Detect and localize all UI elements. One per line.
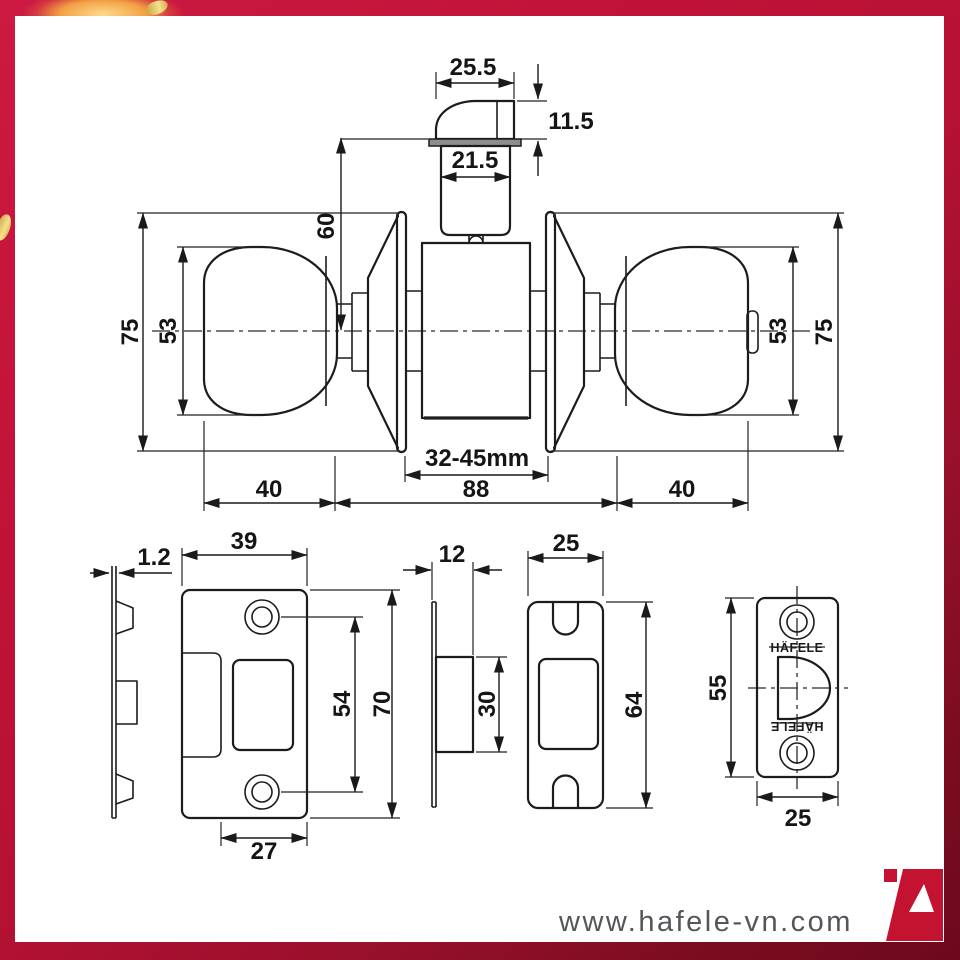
dim-text-64: 64 [621, 691, 648, 718]
strike-plate-lip [182, 653, 221, 757]
dim-text-1-2: 1.2 [137, 544, 170, 571]
dim-text-75-left: 75 [117, 319, 144, 346]
strike-side-plate [112, 566, 116, 818]
dim-text-21-5: 21.5 [452, 147, 499, 174]
latch-case-box [436, 657, 473, 752]
strike-screw-hole-top-inner [252, 607, 272, 627]
dim-text-70: 70 [369, 691, 396, 718]
dim-text-25-5: 25.5 [450, 54, 497, 81]
strike-screw-hole-top [245, 600, 279, 634]
dim-text-40-left: 40 [256, 476, 283, 503]
dim-text-11-5: 11.5 [548, 108, 593, 135]
strike-extension-lines [182, 548, 400, 846]
faceplate-brand-text-reversed: HÄFELE [771, 719, 824, 734]
latch-case-side-view: 12 30 [403, 541, 507, 807]
strike-plate-outline [182, 590, 307, 818]
dim-text-88: 88 [463, 476, 490, 503]
dim-text-53-left: 53 [155, 318, 182, 345]
left-rose-plate [397, 212, 406, 452]
dust-box-extension-lines [528, 551, 653, 808]
strike-latch-opening [233, 660, 293, 750]
footer: www.hafele-vn.com [558, 906, 853, 938]
knob-assembly-drawing: 25.5 11.5 21.5 60 75 53 53 75 40 88 40 3… [117, 54, 844, 511]
strike-plate-front-view: 39 70 54 27 [182, 528, 400, 865]
dim-text-54: 54 [329, 690, 356, 717]
strike-screw-hole-bottom [245, 775, 279, 809]
dim-text-39: 39 [231, 528, 258, 555]
strike-plate-side-view: 1.2 [90, 544, 172, 818]
strike-side-tabs [116, 601, 137, 804]
dust-box-opening [539, 659, 598, 749]
dim-text-25-dust: 25 [553, 530, 580, 557]
dim-text-30: 30 [474, 691, 501, 718]
dim-text-40-right: 40 [669, 476, 696, 503]
website-url: www.hafele-vn.com [558, 906, 853, 938]
dim-text-75-right: 75 [811, 319, 838, 346]
dim-text-53-right: 53 [765, 318, 792, 345]
left-rose-cone [368, 216, 398, 448]
dim-text-27: 27 [251, 838, 278, 865]
dim-text-12: 12 [439, 541, 466, 568]
strike-screw-hole-bottom-inner [252, 782, 272, 802]
right-rose-plate [546, 212, 555, 452]
dim-text-32-45: 32-45mm [425, 445, 529, 472]
logo-umlaut-square [884, 869, 897, 882]
technical-drawing-svg: 25.5 11.5 21.5 60 75 53 53 75 40 88 40 3… [0, 0, 960, 960]
faceplate-view: HÄFELE HÄFELE 55 25 [705, 586, 848, 832]
dim-text-60: 60 [313, 213, 340, 240]
dust-box-view: 25 64 [528, 530, 653, 808]
dim-text-25-face: 25 [785, 805, 812, 832]
dust-box-notches [553, 602, 578, 808]
hafele-a-logo-icon [884, 869, 943, 941]
dim-text-55: 55 [705, 675, 732, 702]
right-knob-stem [584, 293, 615, 371]
latch-bolt-outline [436, 101, 514, 139]
right-rose-cone [554, 216, 584, 448]
